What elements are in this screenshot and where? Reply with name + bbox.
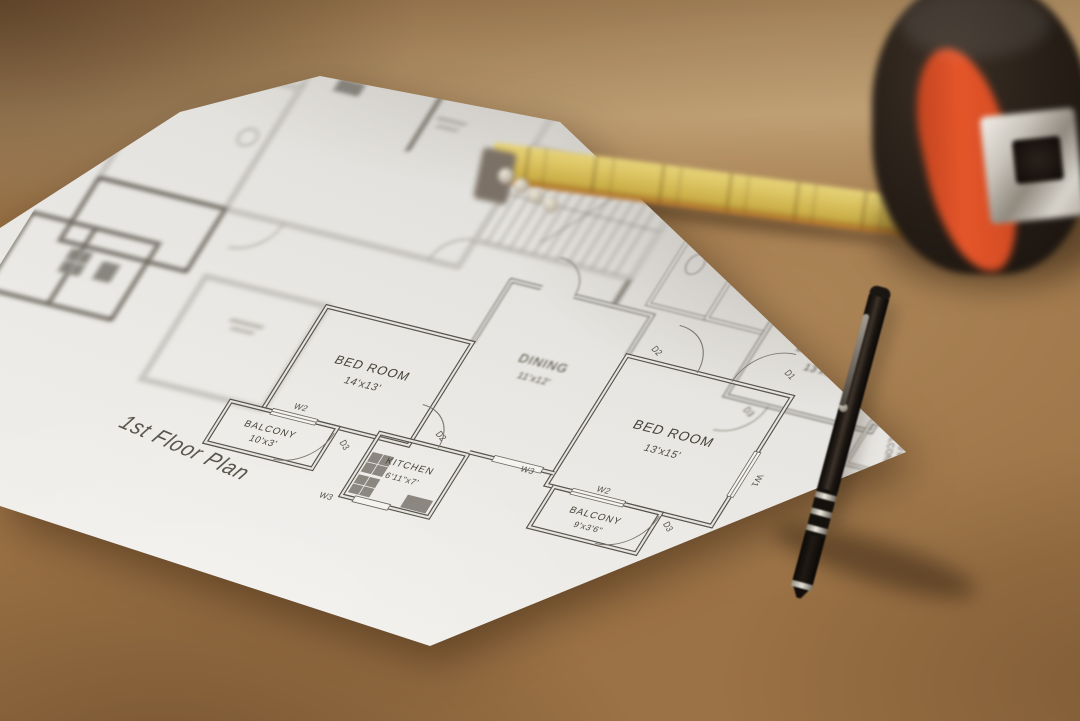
bathrooms <box>648 224 815 333</box>
door-window-label: D3 <box>661 520 676 534</box>
door-window-label: W2 <box>292 401 310 413</box>
window-symbol <box>352 496 390 510</box>
sink-fixture <box>750 252 774 267</box>
dining-area: DINING 11'x12' <box>458 250 671 401</box>
room-size: 13'x15' <box>641 442 683 461</box>
door-window-label: W3 <box>518 464 536 476</box>
tape-measure-slot <box>1012 136 1064 185</box>
room-size: 14'x13' <box>341 375 383 394</box>
door-window-label: W3 <box>317 490 335 502</box>
room-bedroom-right: BED ROOM 13'x9'6" D3 <box>705 284 940 464</box>
blade-bead <box>543 197 559 213</box>
door-window-label: D1 <box>782 368 798 382</box>
door-window-label: D3 <box>337 438 352 452</box>
rooms-sharp: BED ROOM 14'x13' BALCONY 10'x3' W2 D3 <box>102 218 836 598</box>
blade-bead <box>498 168 514 184</box>
window-symbol <box>492 455 544 473</box>
kitchen: KITCHEN 6'11"x7' D2 W3 <box>317 394 489 525</box>
hall-wall: W3 <box>465 449 556 480</box>
door-window-label: W1 <box>749 474 766 488</box>
blade-bead <box>528 188 544 204</box>
room-size: 11'x12' <box>515 371 553 389</box>
blade-bead <box>513 178 529 194</box>
room-bedroom-left: BED ROOM 14'x13' <box>263 307 473 446</box>
door-window-label: D2 <box>649 344 665 358</box>
room-label: BED ROOM <box>630 417 718 451</box>
photo-scene: DINING 11'x12' <box>0 0 1080 721</box>
door-window-label: D2 <box>433 429 449 443</box>
room-size: 13'x9'6" <box>801 362 847 382</box>
door-window-label: D3 <box>741 405 757 419</box>
toilet-fixture <box>681 253 709 276</box>
rooms-blurred-topleft <box>0 10 712 471</box>
